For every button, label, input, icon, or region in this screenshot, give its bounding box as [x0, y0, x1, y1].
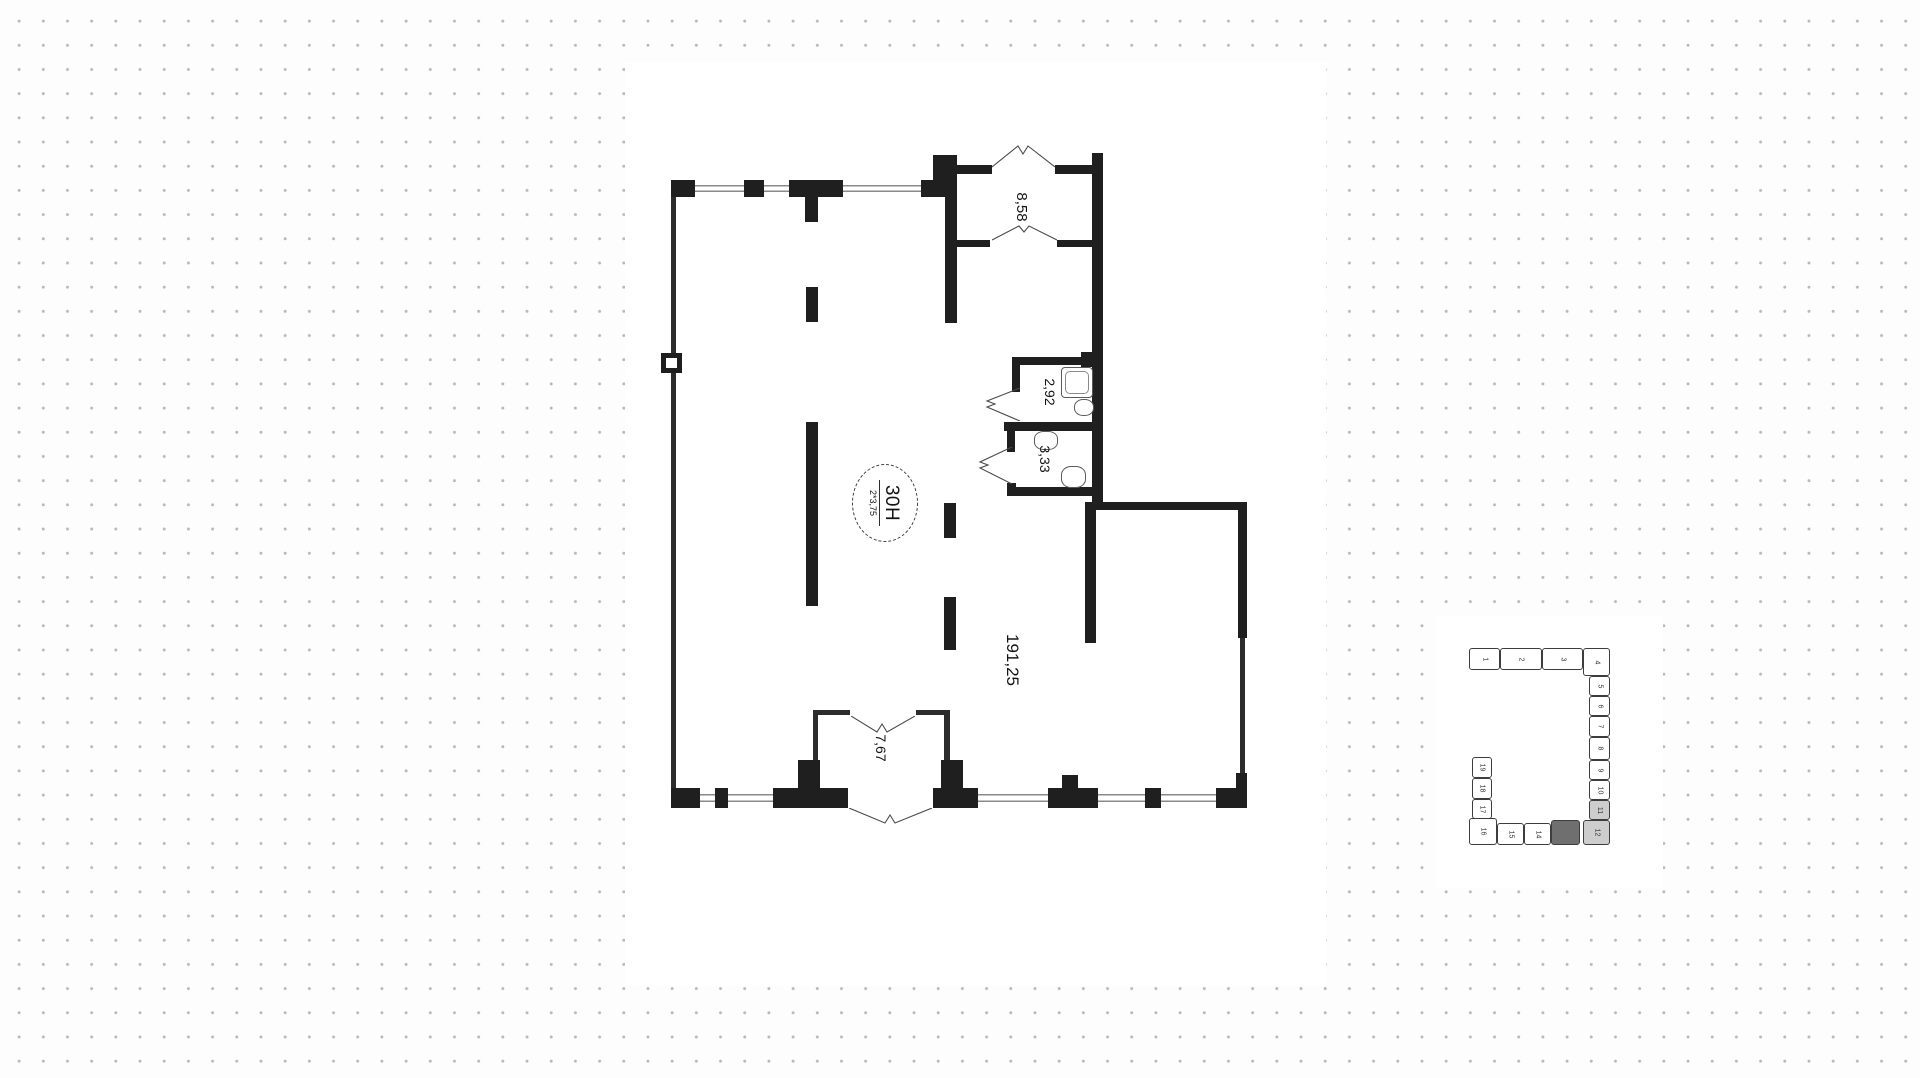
window — [978, 788, 1048, 808]
unit-number-badge: 30H 2*3,75 — [852, 464, 918, 542]
bathtub-icon — [1061, 367, 1093, 398]
area-label-main-room: 191,25 — [1002, 625, 1022, 695]
unit-number: 30H — [882, 485, 902, 521]
minimap-section-2[interactable]: 2 — [1500, 648, 1542, 670]
area-label-vestibule: 7,67 — [871, 713, 891, 783]
badge-divider — [880, 480, 881, 526]
wall-segment — [941, 760, 963, 789]
section-number: 8 — [1596, 747, 1603, 751]
entrance-opening — [848, 788, 933, 808]
minimap-section-6[interactable]: 6 — [1589, 696, 1610, 716]
wall-segment — [1092, 153, 1103, 502]
column — [806, 287, 818, 322]
section-number: 10 — [1596, 786, 1603, 794]
minimap-section-5[interactable]: 5 — [1589, 676, 1610, 696]
minimap-section-current[interactable] — [1551, 820, 1580, 845]
wall-segment — [1085, 502, 1096, 643]
floor-plan-page: { "page": { "background_dot_color": "#b9… — [0, 0, 1920, 1078]
plan-canvas-backdrop — [625, 62, 1326, 986]
section-number: 1 — [1481, 657, 1488, 661]
minimap-section-16[interactable]: 16 — [1469, 818, 1497, 845]
minimap-section-4[interactable]: 4 — [1583, 648, 1610, 676]
wall-segment — [944, 715, 950, 762]
minimap-section-17[interactable]: 17 — [1472, 799, 1492, 819]
section-number: 5 — [1596, 684, 1603, 688]
area-label-wc-large: 3,33 — [1035, 424, 1055, 494]
door-swing-icon — [992, 144, 1055, 168]
wall-segment — [945, 155, 957, 323]
minimap-section-14[interactable]: 14 — [1524, 823, 1551, 845]
door-swing-icon — [849, 808, 932, 827]
column — [805, 197, 818, 222]
wall-niche — [666, 358, 677, 368]
window — [764, 180, 789, 197]
section-number: 18 — [1478, 785, 1485, 793]
unit-note: 2*3,75 — [869, 490, 879, 516]
wall-segment — [813, 710, 850, 715]
section-number: 15 — [1507, 830, 1514, 838]
minimap-section-11[interactable]: 11 — [1589, 800, 1610, 820]
minimap-section-1[interactable]: 1 — [1469, 648, 1500, 670]
section-number: 11 — [1596, 806, 1603, 813]
wall-segment — [1085, 502, 1247, 510]
column — [1062, 775, 1078, 788]
minimap-section-9[interactable]: 9 — [1589, 760, 1610, 780]
wall-segment — [813, 715, 818, 762]
column — [944, 503, 956, 538]
section-number: 12 — [1593, 829, 1600, 837]
minimap-section-7[interactable]: 7 — [1589, 716, 1610, 737]
toilet-icon — [1061, 466, 1086, 488]
wall-segment — [671, 197, 676, 788]
column — [944, 597, 956, 650]
minimap-section-3[interactable]: 3 — [1542, 648, 1583, 670]
minimap-section-15[interactable]: 15 — [1497, 823, 1524, 845]
section-number: 17 — [1478, 805, 1485, 813]
area-label-top-room: 8,58 — [1011, 172, 1031, 242]
wall-segment — [957, 165, 992, 174]
wall-segment — [1081, 352, 1094, 367]
minimap-section-19[interactable]: 19 — [1472, 757, 1492, 778]
section-number: 7 — [1596, 725, 1603, 729]
window — [1161, 788, 1216, 808]
minimap-section-12[interactable]: 12 — [1583, 820, 1610, 845]
window — [728, 788, 773, 808]
minimap-section-18[interactable]: 18 — [1472, 778, 1492, 799]
section-number: 16 — [1479, 828, 1486, 836]
minimap-section-10[interactable]: 10 — [1589, 780, 1610, 800]
minimap-section-8[interactable]: 8 — [1589, 737, 1610, 760]
wall-segment — [1057, 240, 1092, 247]
wall-segment — [1012, 357, 1020, 392]
door-swing-icon — [977, 447, 1013, 484]
wall-segment — [798, 760, 820, 789]
partition-wall — [806, 422, 818, 606]
wall-segment — [1055, 165, 1093, 174]
section-number: 19 — [1478, 764, 1485, 772]
window — [700, 788, 715, 808]
section-number: 4 — [1593, 660, 1600, 664]
section-number: 14 — [1534, 830, 1541, 838]
wall-segment — [1238, 502, 1247, 638]
section-number: 6 — [1596, 704, 1603, 708]
door-swing-icon — [984, 388, 1021, 421]
area-label-wc-small: 2,92 — [1040, 357, 1060, 427]
section-number: 9 — [1596, 768, 1603, 772]
section-number: 3 — [1559, 657, 1566, 661]
window — [695, 180, 744, 197]
window — [843, 180, 921, 197]
sink-icon — [1074, 399, 1094, 416]
section-number: 2 — [1518, 657, 1525, 661]
window — [1098, 788, 1145, 808]
wall-segment — [957, 240, 990, 247]
wall-segment — [1240, 638, 1245, 790]
